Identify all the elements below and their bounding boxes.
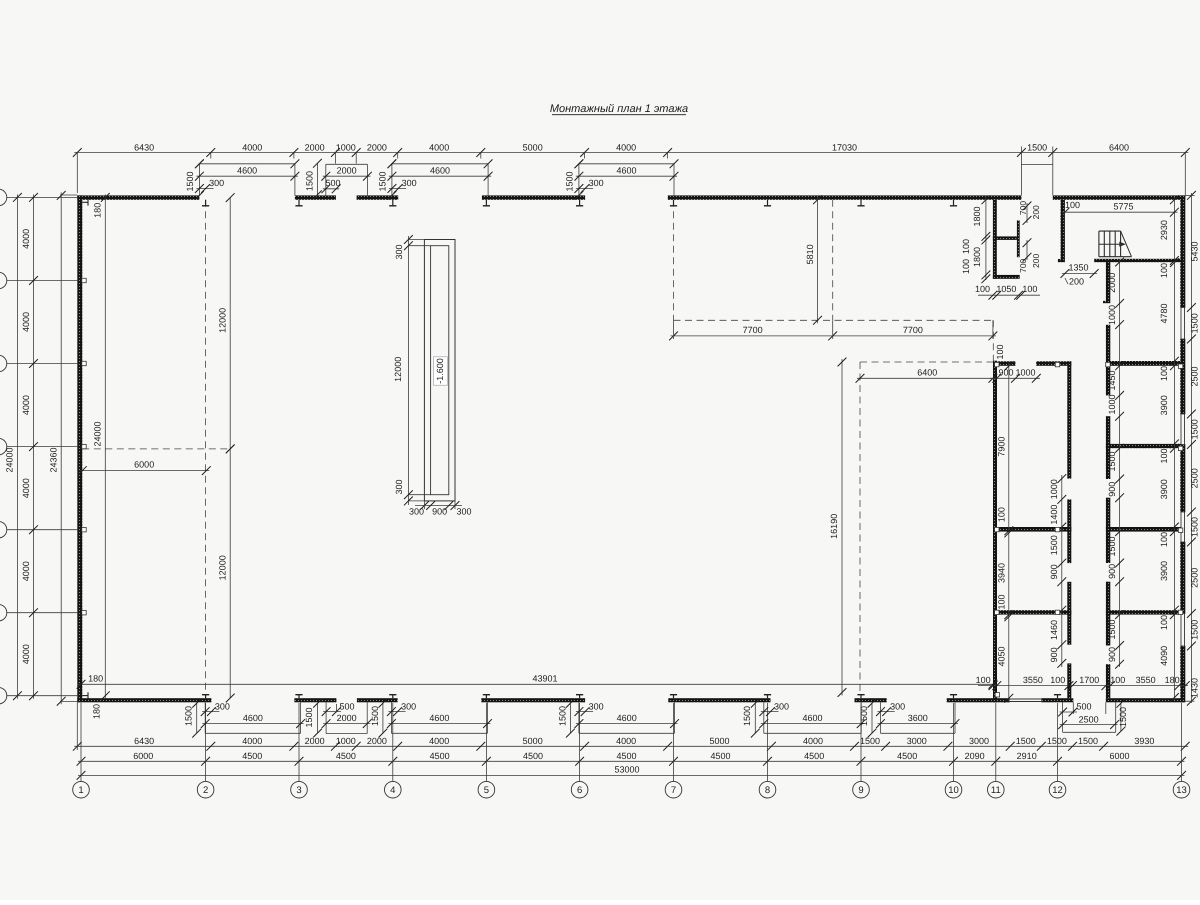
- svg-text:180: 180: [88, 673, 103, 683]
- svg-text:100: 100: [1159, 532, 1169, 547]
- svg-text:4600: 4600: [243, 713, 263, 723]
- svg-text:4050: 4050: [996, 646, 1006, 666]
- svg-text:1500: 1500: [1107, 619, 1117, 639]
- svg-text:1000: 1000: [1015, 367, 1035, 377]
- svg-text:5000: 5000: [523, 736, 543, 746]
- svg-text:4500: 4500: [242, 751, 262, 761]
- svg-text:4500: 4500: [336, 751, 356, 761]
- svg-text:100: 100: [995, 344, 1005, 359]
- svg-text:17030: 17030: [832, 142, 857, 152]
- svg-text:Монтажный план 1 этажа: Монтажный план 1 этажа: [550, 103, 688, 115]
- svg-text:100: 100: [1065, 200, 1080, 210]
- svg-text:2500: 2500: [1189, 366, 1199, 386]
- svg-text:100: 100: [1022, 284, 1037, 294]
- svg-text:4600: 4600: [429, 713, 449, 723]
- svg-text:4500: 4500: [616, 751, 636, 761]
- svg-text:300: 300: [456, 507, 471, 517]
- svg-text:3940: 3940: [996, 563, 1006, 583]
- svg-text:10: 10: [948, 785, 959, 796]
- svg-text:7700: 7700: [903, 325, 923, 335]
- svg-text:1000: 1000: [1049, 479, 1059, 499]
- svg-text:300: 300: [890, 701, 905, 711]
- svg-text:8: 8: [765, 785, 770, 796]
- svg-text:1000: 1000: [336, 736, 356, 746]
- svg-text:4000: 4000: [429, 142, 449, 152]
- svg-text:300: 300: [209, 178, 224, 188]
- svg-text:-1.600: -1.600: [435, 358, 445, 384]
- svg-text:1050: 1050: [996, 284, 1016, 294]
- svg-text:3900: 3900: [1159, 479, 1169, 499]
- svg-text:43901: 43901: [532, 674, 557, 684]
- svg-text:1000: 1000: [336, 142, 356, 152]
- svg-text:1500: 1500: [304, 707, 314, 727]
- svg-text:6: 6: [577, 785, 582, 796]
- svg-text:900: 900: [1049, 647, 1059, 662]
- svg-text:4600: 4600: [430, 165, 450, 175]
- svg-text:2: 2: [203, 785, 208, 796]
- svg-text:1500: 1500: [1107, 451, 1117, 471]
- svg-text:1500: 1500: [377, 171, 387, 191]
- svg-text:6430: 6430: [134, 142, 154, 152]
- svg-text:4500: 4500: [430, 751, 450, 761]
- svg-text:4000: 4000: [21, 229, 31, 249]
- svg-text:1500: 1500: [185, 171, 195, 191]
- svg-text:12000: 12000: [393, 357, 403, 382]
- svg-text:100: 100: [1110, 675, 1125, 685]
- svg-text:900: 900: [432, 507, 447, 517]
- svg-text:7: 7: [671, 785, 676, 796]
- svg-text:700: 700: [1018, 201, 1028, 215]
- svg-text:180: 180: [92, 704, 102, 719]
- svg-text:1500: 1500: [859, 706, 869, 726]
- svg-text:24000: 24000: [93, 421, 103, 446]
- svg-text:900: 900: [1107, 482, 1117, 497]
- svg-text:1400: 1400: [1049, 505, 1059, 525]
- svg-text:24360: 24360: [48, 447, 58, 472]
- svg-text:4600: 4600: [616, 165, 636, 175]
- svg-text:100: 100: [976, 675, 991, 685]
- svg-text:1: 1: [78, 785, 83, 796]
- svg-text:100: 100: [1159, 366, 1169, 381]
- svg-text:1800: 1800: [972, 206, 982, 226]
- svg-text:1500: 1500: [1107, 536, 1117, 556]
- svg-text:4500: 4500: [897, 751, 917, 761]
- svg-text:100: 100: [996, 507, 1006, 522]
- svg-text:4500: 4500: [804, 751, 824, 761]
- svg-text:1450: 1450: [1107, 370, 1117, 390]
- svg-text:300: 300: [774, 701, 789, 711]
- svg-text:300: 300: [409, 507, 424, 517]
- svg-text:4600: 4600: [617, 713, 637, 723]
- svg-text:11: 11: [991, 785, 1001, 796]
- svg-text:2090: 2090: [965, 751, 985, 761]
- svg-text:1500: 1500: [1189, 620, 1199, 640]
- svg-text:180: 180: [93, 203, 103, 218]
- svg-text:12: 12: [1052, 785, 1063, 796]
- svg-text:100: 100: [961, 259, 971, 274]
- svg-text:1500: 1500: [564, 171, 574, 191]
- svg-text:5: 5: [484, 785, 489, 796]
- svg-text:4000: 4000: [803, 736, 823, 746]
- svg-text:100: 100: [1159, 615, 1169, 630]
- svg-text:9: 9: [858, 785, 863, 796]
- svg-text:3930: 3930: [1134, 736, 1154, 746]
- svg-text:12000: 12000: [217, 308, 227, 333]
- svg-text:4000: 4000: [21, 312, 31, 332]
- svg-text:2910: 2910: [1017, 751, 1037, 761]
- svg-text:3900: 3900: [1159, 561, 1169, 581]
- svg-text:7900: 7900: [996, 437, 1006, 457]
- svg-text:2500: 2500: [1189, 568, 1199, 588]
- svg-text:500: 500: [325, 178, 340, 188]
- svg-text:5430: 5430: [1189, 241, 1199, 261]
- svg-text:3600: 3600: [908, 713, 928, 723]
- svg-text:7700: 7700: [743, 325, 763, 335]
- svg-text:1500: 1500: [860, 736, 880, 746]
- svg-text:1500: 1500: [1189, 517, 1199, 537]
- svg-text:13: 13: [1176, 785, 1187, 796]
- svg-text:1500: 1500: [1078, 736, 1098, 746]
- svg-text:4600: 4600: [802, 713, 822, 723]
- svg-text:3: 3: [296, 785, 301, 796]
- svg-text:5000: 5000: [709, 736, 729, 746]
- svg-text:2000: 2000: [305, 736, 325, 746]
- svg-text:4000: 4000: [21, 644, 31, 664]
- svg-text:700: 700: [1018, 258, 1028, 272]
- svg-text:2000: 2000: [337, 713, 357, 723]
- svg-text:2000: 2000: [367, 736, 387, 746]
- svg-text:3550: 3550: [1136, 675, 1156, 685]
- svg-text:100: 100: [975, 284, 990, 294]
- svg-text:1500: 1500: [742, 706, 752, 726]
- svg-text:1500: 1500: [184, 706, 194, 726]
- svg-text:1500: 1500: [1189, 419, 1199, 439]
- svg-text:16190: 16190: [829, 514, 839, 539]
- svg-text:4500: 4500: [523, 751, 543, 761]
- svg-text:2000: 2000: [337, 165, 357, 175]
- svg-text:100: 100: [961, 239, 971, 254]
- svg-text:300: 300: [589, 701, 604, 711]
- svg-text:1500: 1500: [370, 706, 380, 726]
- svg-text:1500: 1500: [305, 171, 315, 191]
- svg-text:2000: 2000: [1107, 273, 1117, 293]
- svg-text:4000: 4000: [21, 478, 31, 498]
- svg-text:200: 200: [1031, 254, 1041, 268]
- svg-text:300: 300: [394, 479, 404, 494]
- svg-text:6400: 6400: [917, 367, 937, 377]
- svg-text:4000: 4000: [429, 736, 449, 746]
- svg-text:2930: 2930: [1159, 220, 1169, 240]
- svg-text:200: 200: [1031, 205, 1041, 219]
- svg-text:2500: 2500: [1079, 714, 1099, 724]
- svg-text:500: 500: [339, 701, 354, 711]
- svg-text:1460: 1460: [1049, 620, 1059, 640]
- svg-text:1500: 1500: [557, 706, 567, 726]
- svg-text:3000: 3000: [907, 736, 927, 746]
- svg-text:900: 900: [1107, 564, 1117, 579]
- svg-text:6000: 6000: [134, 459, 154, 469]
- svg-text:1000: 1000: [1107, 305, 1117, 325]
- svg-text:6430: 6430: [134, 736, 154, 746]
- svg-text:6400: 6400: [1109, 142, 1129, 152]
- svg-text:53000: 53000: [614, 765, 639, 775]
- svg-text:300: 300: [215, 701, 230, 711]
- svg-text:4600: 4600: [237, 165, 257, 175]
- svg-text:2500: 2500: [1189, 468, 1199, 488]
- svg-text:1500: 1500: [1047, 736, 1067, 746]
- svg-text:4000: 4000: [616, 142, 636, 152]
- svg-text:3900: 3900: [1159, 395, 1169, 415]
- svg-text:100: 100: [1159, 263, 1169, 278]
- svg-text:100: 100: [996, 594, 1006, 609]
- svg-text:1500: 1500: [1027, 142, 1047, 152]
- svg-text:100: 100: [1159, 448, 1169, 463]
- svg-text:1500: 1500: [1118, 707, 1128, 727]
- svg-text:1430: 1430: [1189, 678, 1199, 698]
- svg-text:4000: 4000: [21, 395, 31, 415]
- svg-text:4780: 4780: [1159, 303, 1169, 323]
- svg-text:300: 300: [402, 178, 417, 188]
- svg-text:1500: 1500: [1049, 535, 1059, 555]
- svg-text:500: 500: [1076, 702, 1091, 712]
- svg-text:1000: 1000: [1107, 394, 1117, 414]
- svg-text:1350: 1350: [1068, 263, 1088, 273]
- svg-text:6000: 6000: [1109, 751, 1129, 761]
- svg-text:3550: 3550: [1023, 675, 1043, 685]
- svg-text:1800: 1800: [972, 247, 982, 267]
- svg-text:2000: 2000: [305, 142, 325, 152]
- svg-text:200: 200: [1069, 277, 1084, 287]
- svg-text:5775: 5775: [1113, 202, 1133, 212]
- svg-text:4090: 4090: [1159, 646, 1169, 666]
- svg-text:300: 300: [394, 244, 404, 259]
- svg-text:300: 300: [401, 701, 416, 711]
- svg-text:1700: 1700: [1079, 675, 1099, 685]
- svg-text:4: 4: [390, 785, 395, 796]
- svg-text:12000: 12000: [217, 555, 227, 580]
- svg-text:3000: 3000: [969, 736, 989, 746]
- svg-text:5810: 5810: [805, 244, 815, 264]
- svg-text:2000: 2000: [367, 142, 387, 152]
- svg-text:4500: 4500: [710, 751, 730, 761]
- svg-text:900: 900: [1107, 647, 1117, 662]
- svg-text:4000: 4000: [242, 142, 262, 152]
- svg-text:180: 180: [1165, 675, 1180, 685]
- svg-text:1500: 1500: [1189, 313, 1199, 333]
- svg-text:6000: 6000: [133, 751, 153, 761]
- svg-text:900: 900: [1049, 564, 1059, 579]
- svg-text:1500: 1500: [1016, 736, 1036, 746]
- svg-text:24000: 24000: [5, 447, 15, 472]
- svg-text:4000: 4000: [21, 561, 31, 581]
- svg-text:300: 300: [589, 178, 604, 188]
- svg-text:4000: 4000: [616, 736, 636, 746]
- svg-text:100: 100: [1050, 675, 1065, 685]
- svg-text:4000: 4000: [242, 736, 262, 746]
- svg-text:5000: 5000: [523, 142, 543, 152]
